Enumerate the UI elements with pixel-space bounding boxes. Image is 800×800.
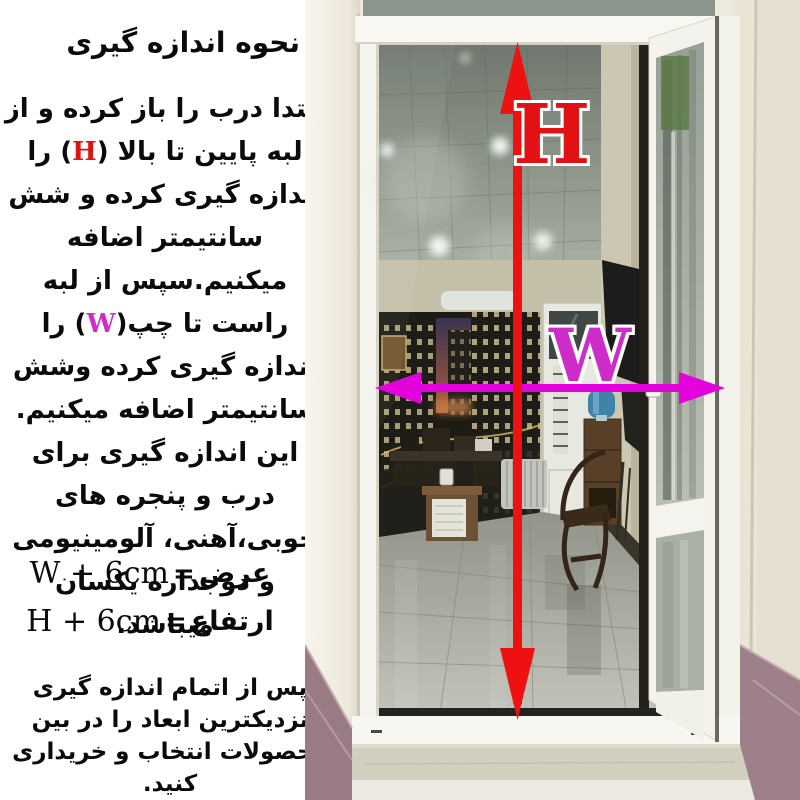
height-formula-value: H + 6cm (26, 604, 161, 639)
height-variable-label: H (513, 94, 590, 176)
w-variable: W (86, 309, 115, 339)
width-variable-label: W (549, 320, 631, 393)
page-title: نحوه اندازه گیری (0, 26, 302, 59)
width-formula-value: W + 6cm (30, 556, 169, 591)
width-formula-equals: = (173, 559, 195, 589)
measurement-infographic: نحوه اندازه گیری ابتدا درب را باز کرده و… (0, 0, 800, 800)
marble-step (313, 748, 792, 800)
width-formula-label: عرض (199, 558, 271, 589)
width-formula: عرض = W + 6cm (0, 556, 300, 591)
h-variable: H (72, 137, 97, 167)
footer-note: پس از اتمام اندازه گیری نزدیکترین ابعاد … (0, 672, 340, 800)
height-formula-label: ارتفاع (191, 606, 274, 637)
height-formula: ارتفاع = H + 6cm (0, 604, 300, 639)
height-formula-equals: = (165, 607, 187, 637)
